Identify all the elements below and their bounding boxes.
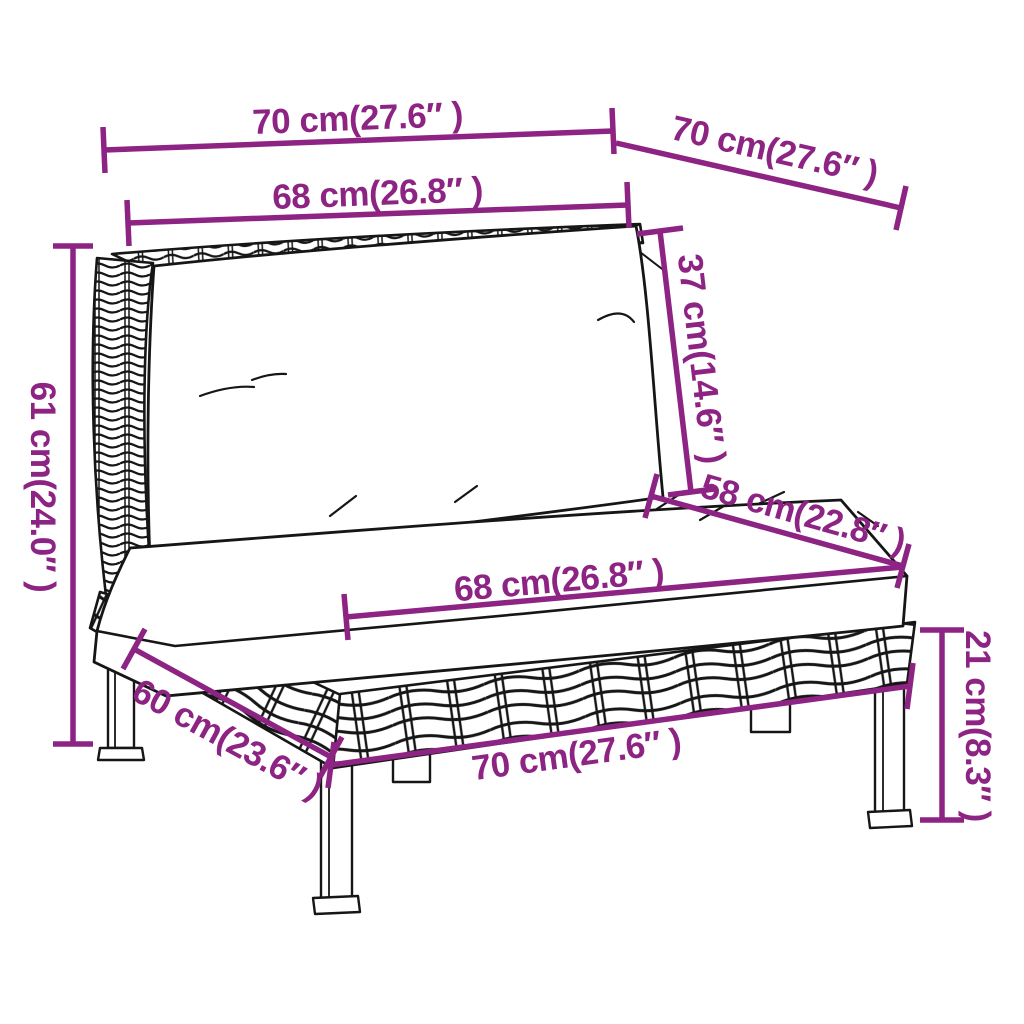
dim-back-cushion-width-label: 68 cm(26.8″ ) [272, 170, 484, 217]
dim-total-height-label: 61 cm(24.0″ ) [23, 382, 62, 593]
dim-back-cushion-height-label: 37 cm(14.6″ ) [670, 252, 733, 466]
dim-top-width: 70 cm(27.6″ ) [103, 95, 614, 173]
dim-leg-height-label: 21 cm(8.3″ ) [958, 630, 997, 822]
back-cushion [148, 226, 663, 561]
leg-front-right [868, 688, 912, 828]
dim-top-width-label: 70 cm(27.6″ ) [252, 95, 464, 142]
dim-top-depth: 70 cm(27.6″ ) [616, 108, 906, 230]
dim-total-height: 61 cm(24.0″ ) [23, 246, 93, 744]
dimension-diagram: 70 cm(27.6″ ) 70 cm(27.6″ ) 68 cm(26.8″ … [0, 0, 1024, 1024]
dim-leg-height: 21 cm(8.3″ ) [920, 630, 997, 822]
